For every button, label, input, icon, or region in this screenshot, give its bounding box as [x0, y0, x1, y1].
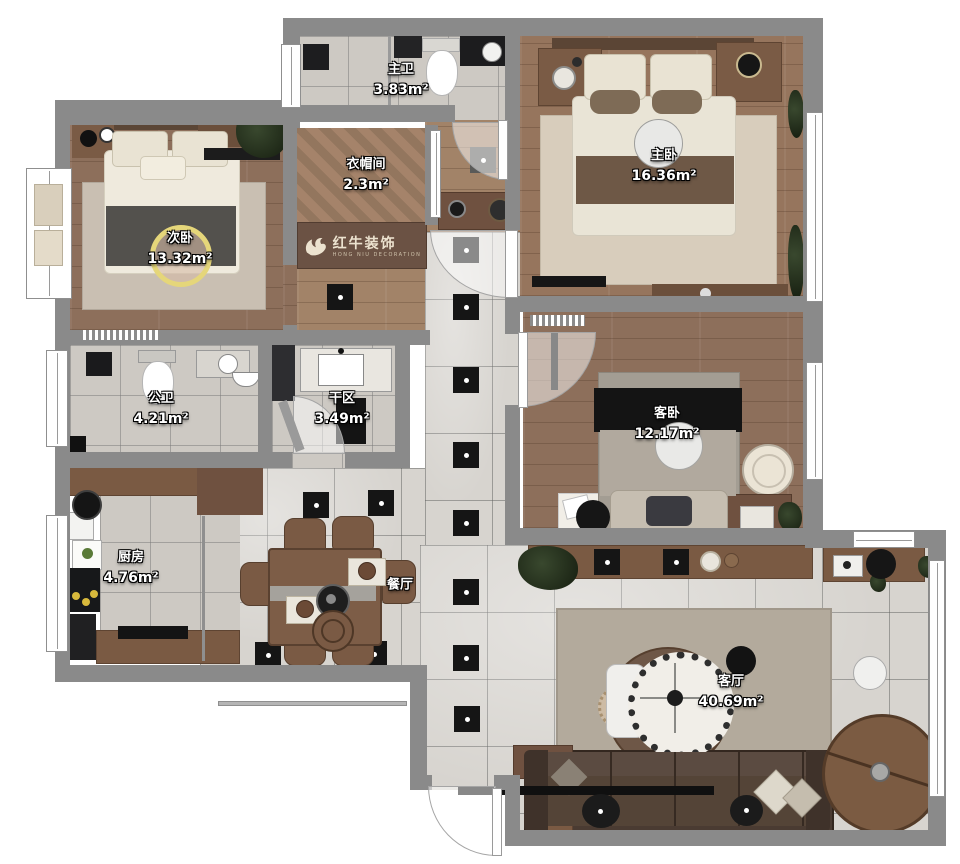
- room-label-cloakroom: 衣帽间 2.3m²: [343, 155, 389, 195]
- decor-plate: [736, 52, 762, 78]
- hongniu-bull-icon: [303, 233, 329, 259]
- lemon: [82, 598, 90, 606]
- entry-door-leaf: [492, 788, 502, 856]
- accent-tile: [453, 645, 479, 671]
- console-tray: [663, 549, 689, 575]
- curtain-hatch: [80, 330, 158, 340]
- room-label-public-bath: 公卫 4.21m²: [133, 389, 188, 429]
- shower-fixture: [394, 36, 422, 58]
- sofa-back: [548, 752, 806, 776]
- pillow-roll: [590, 90, 640, 114]
- wall: [55, 452, 292, 468]
- room-label-dry-area: 干区 3.49m²: [314, 389, 369, 429]
- room-label-master-bedroom: 主卧 16.36m²: [631, 146, 696, 186]
- table-center: [667, 690, 683, 706]
- desk-chair: [866, 549, 896, 579]
- plant-small: [82, 548, 93, 559]
- dot: [744, 808, 749, 813]
- accent-tile: [327, 284, 353, 310]
- cloakroom-door: [430, 130, 441, 218]
- dining-chair: [332, 516, 374, 550]
- accent-tile: [453, 367, 479, 393]
- pillow-roll: [652, 90, 702, 114]
- window: [46, 515, 68, 652]
- armchair-seat: [752, 454, 786, 488]
- room-label-second-bedroom: 次卧 13.32m²: [147, 229, 212, 269]
- tall-cabinet: [270, 345, 295, 401]
- wall: [505, 36, 520, 120]
- side-table-white: [853, 656, 887, 690]
- accent-tile: [453, 579, 479, 605]
- window: [46, 350, 68, 447]
- pillow-dark: [646, 496, 692, 526]
- washer: [303, 44, 329, 70]
- wall: [283, 18, 823, 36]
- console-tray: [594, 549, 620, 575]
- wall: [258, 345, 272, 452]
- logo-en: HONG NIU DECORATION: [333, 252, 422, 258]
- dot: [598, 809, 603, 814]
- wall: [283, 105, 455, 122]
- wall: [505, 405, 520, 545]
- floor-door-gap: [283, 265, 297, 327]
- faucet: [338, 348, 344, 354]
- range-hood: [72, 490, 102, 520]
- dining-chair: [284, 518, 326, 552]
- wall: [55, 100, 300, 125]
- door-leaf: [518, 332, 528, 408]
- sink-basin: [482, 42, 502, 62]
- bench: [532, 276, 606, 287]
- window: [929, 560, 945, 797]
- plant: [788, 90, 804, 138]
- camera: [843, 561, 851, 569]
- window-seat-cushion: [34, 230, 63, 266]
- lemon: [72, 592, 80, 600]
- plate: [358, 562, 376, 580]
- room-label-dining: 餐厅: [387, 576, 413, 597]
- hanging-chair-hub: [870, 762, 890, 782]
- plant: [788, 225, 804, 300]
- decor-plate: [700, 551, 721, 572]
- decor: [448, 200, 466, 218]
- wall: [505, 528, 823, 545]
- window-seat-cushion: [34, 184, 63, 226]
- wall: [505, 296, 823, 312]
- pillow-small: [140, 156, 186, 180]
- decor: [572, 57, 582, 67]
- decor-bowl: [724, 553, 739, 568]
- wall: [505, 830, 946, 846]
- accent-tile: [453, 442, 479, 468]
- wall: [410, 665, 427, 790]
- room-label-guest-bedroom: 客卧 12.17m²: [634, 404, 699, 444]
- floor-dry-door-gap: [292, 452, 345, 468]
- hotpot-lid: [326, 594, 336, 604]
- lemon: [90, 590, 98, 598]
- window: [806, 112, 823, 302]
- railing-line: [218, 701, 407, 706]
- logo-cn: 红牛装饰: [333, 236, 397, 252]
- toilet-bowl: [426, 50, 458, 96]
- accent-tile: [368, 490, 394, 516]
- door-leaf: [505, 230, 518, 298]
- sink-basin: [218, 354, 238, 374]
- room-label-master-bath: 主卫 3.83m²: [373, 60, 428, 100]
- room-label-kitchen: 厨房 4.76m²: [103, 548, 158, 588]
- logo-text: 红牛装饰 HONG NIU DECORATION: [333, 233, 422, 258]
- wall: [283, 125, 297, 265]
- accent-tile: [454, 706, 480, 732]
- wall: [505, 312, 520, 334]
- cabinet: [66, 614, 96, 660]
- glass-door: [202, 516, 205, 661]
- window: [853, 531, 915, 548]
- wall: [55, 665, 427, 682]
- tray: [118, 626, 188, 639]
- hongniu-logo: 红牛装饰 HONG NIU DECORATION: [297, 222, 427, 269]
- accent-tile: [453, 294, 479, 320]
- entry-door-arc: [428, 786, 496, 856]
- decor-plate: [552, 66, 576, 90]
- window: [281, 44, 301, 108]
- accent-tile: [453, 510, 479, 536]
- accent-tile: [303, 492, 329, 518]
- wall: [55, 100, 70, 168]
- tall-cabinet: [197, 463, 263, 515]
- stool-ring: [321, 619, 345, 643]
- decor-pad: [740, 506, 774, 530]
- wall: [345, 452, 410, 468]
- floor-plan: 红牛装饰 HONG NIU DECORATION: [0, 0, 960, 864]
- door-leaf: [498, 120, 508, 180]
- curtain-hatch: [530, 315, 585, 326]
- vinyl-record: [80, 130, 97, 147]
- wall: [395, 345, 410, 467]
- room-label-living: 客厅 40.69m²: [698, 672, 763, 712]
- sink-basin: [318, 354, 364, 386]
- plate: [296, 600, 314, 618]
- shower-fixture: [86, 352, 112, 376]
- window: [806, 362, 823, 480]
